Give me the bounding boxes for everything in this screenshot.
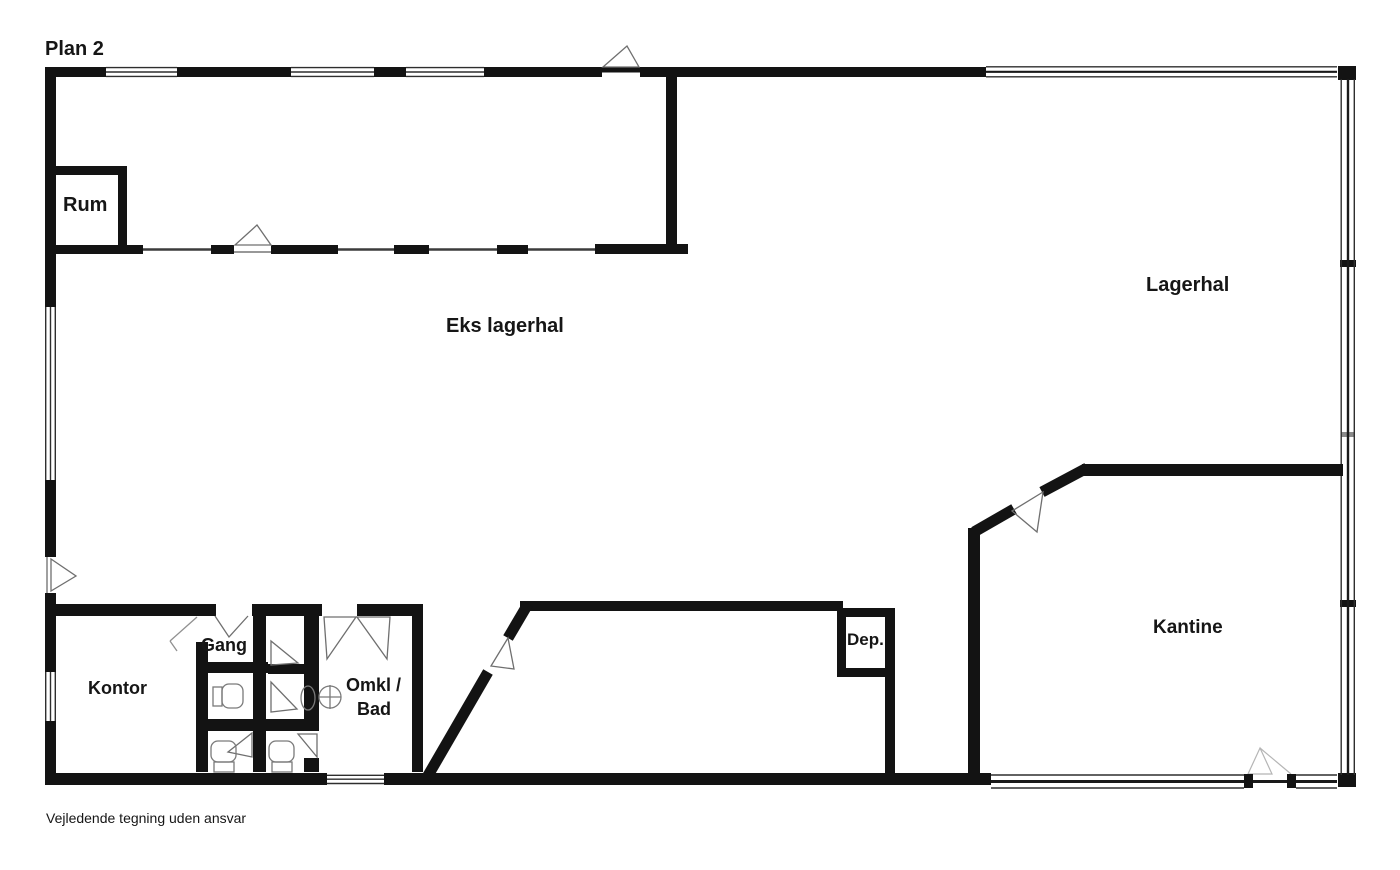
svg-text:Kantine: Kantine bbox=[1153, 617, 1223, 638]
svg-text:Kontor: Kontor bbox=[88, 678, 147, 698]
svg-text:Vejledende tegning uden ansvar: Vejledende tegning uden ansvar bbox=[46, 810, 246, 826]
svg-text:Rum: Rum bbox=[63, 194, 107, 216]
svg-text:Gang: Gang bbox=[201, 635, 247, 655]
svg-text:Bad: Bad bbox=[357, 699, 391, 719]
svg-text:Omkl /: Omkl / bbox=[346, 675, 401, 695]
svg-text:Lagerhal: Lagerhal bbox=[1146, 274, 1229, 296]
svg-text:Plan 2: Plan 2 bbox=[45, 38, 104, 60]
svg-text:Dep.: Dep. bbox=[847, 630, 884, 649]
svg-text:Eks lagerhal: Eks lagerhal bbox=[446, 315, 564, 337]
